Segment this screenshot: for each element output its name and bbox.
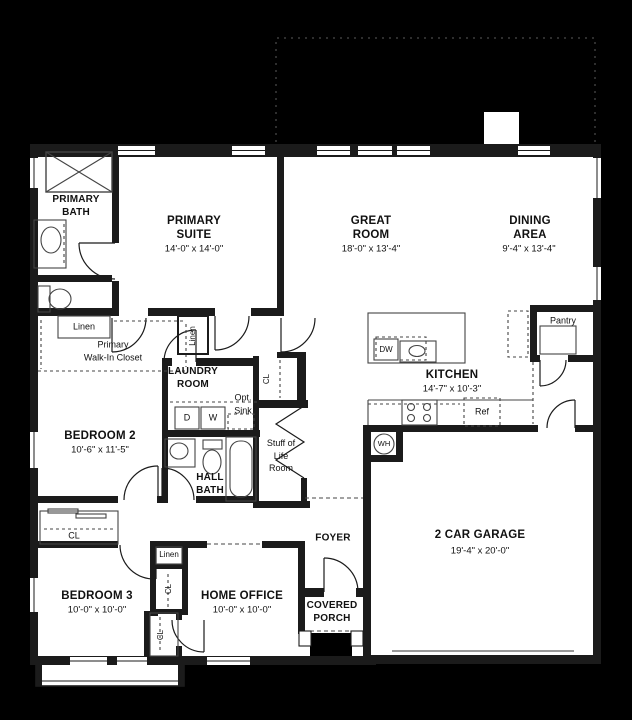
floor-plan: PRIMARY BATHPRIMARY SUITE14'-0" x 14'-0"…	[0, 0, 632, 720]
porch-post	[299, 631, 311, 646]
floor-plan-drawing	[0, 0, 632, 720]
porch-post	[351, 631, 363, 646]
patio-outline	[276, 38, 595, 149]
